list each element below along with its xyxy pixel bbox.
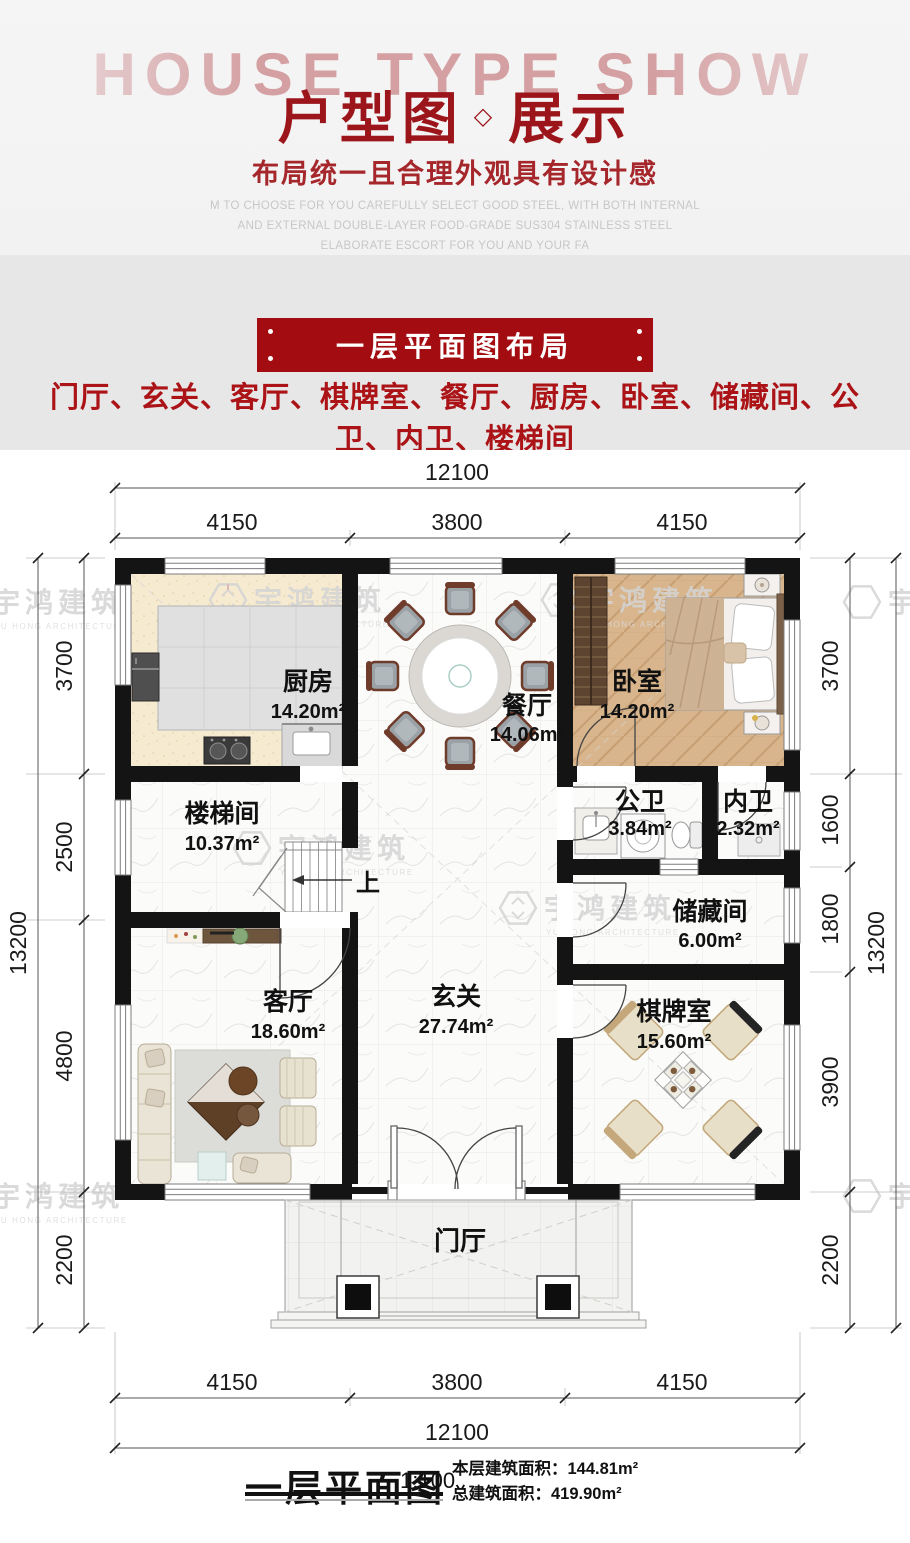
room-area-living: 18.60m² bbox=[251, 1021, 326, 1043]
description-line2: AND EXTERNAL DOUBLE-LAYER FOOD-GRADE SUS… bbox=[0, 216, 910, 236]
window bbox=[784, 1025, 800, 1150]
room-label-storage: 储藏间 bbox=[672, 897, 747, 926]
room-label-living: 客厅 bbox=[263, 987, 313, 1016]
watermark-cn: 宇鸿建筑 bbox=[0, 587, 124, 618]
window bbox=[615, 558, 745, 574]
window bbox=[165, 558, 265, 574]
subtitle: 布局统一且合理外观具有设计感 bbox=[0, 152, 910, 191]
page-title-right: 展示 bbox=[508, 87, 632, 150]
room-area-public-bath: 3.84m² bbox=[608, 818, 672, 840]
dim-left-d: 2200 bbox=[51, 1234, 77, 1285]
watermark-cn: 宇鸿建筑 bbox=[0, 1181, 124, 1212]
dim-left-a: 3700 bbox=[51, 640, 77, 691]
room-area-storage: 6.00m² bbox=[678, 930, 742, 952]
dim-right-c: 1800 bbox=[817, 893, 843, 944]
window bbox=[115, 585, 131, 685]
room-label-mahjong: 棋牌室 bbox=[636, 997, 711, 1026]
dim-bottom-total: 12100 bbox=[425, 1419, 489, 1445]
floor-plan-svg: 宇鸿建筑YU HONG ARCHITECTURE 宇鸿建筑YU HONG ARC… bbox=[0, 450, 910, 1458]
room-area-dining: 14.06m² bbox=[490, 724, 565, 746]
watermark-cn: 宇鸿建筑 bbox=[888, 1181, 910, 1212]
cushion bbox=[145, 1048, 166, 1067]
footer-underline-thin bbox=[245, 1499, 443, 1501]
window bbox=[784, 620, 800, 750]
window bbox=[390, 558, 502, 574]
room-area-kitchen: 14.20m² bbox=[271, 701, 346, 723]
page-title: 户型图◇展示 bbox=[0, 74, 910, 155]
floral-rug bbox=[167, 929, 203, 943]
banner-dot bbox=[268, 329, 273, 334]
window bbox=[165, 1184, 310, 1200]
armchair bbox=[280, 1058, 316, 1098]
total-area-label: 总建筑面积： bbox=[452, 1485, 551, 1503]
porch-step bbox=[271, 1320, 646, 1328]
banner-dot bbox=[268, 356, 273, 361]
total-area-value: 419.90m² bbox=[551, 1485, 622, 1503]
window bbox=[620, 1184, 755, 1200]
footer-area-info: 本层建筑面积：144.81m² 总建筑面积：419.90m² bbox=[452, 1457, 638, 1507]
room-list: 门厅、玄关、客厅、棋牌室、餐厅、厨房、卧室、储藏间、公卫、内卫、楼梯间 bbox=[25, 377, 885, 461]
description-line1: M TO CHOOSE FOR YOU CAREFULLY SELECT GOO… bbox=[0, 196, 910, 216]
footer-underline bbox=[245, 1492, 443, 1496]
section-band: 一层平面图布局 门厅、玄关、客厅、棋牌室、餐厅、厨房、卧室、储藏间、公卫、内卫、… bbox=[0, 255, 910, 453]
dim-right-total: 13200 bbox=[863, 911, 889, 975]
dim-bottom-a: 4150 bbox=[206, 1369, 257, 1395]
room-label-bedroom: 卧室 bbox=[612, 667, 662, 696]
room-area-private-bath: 2.32m² bbox=[716, 818, 780, 840]
banner-title: 一层平面图布局 bbox=[336, 325, 574, 365]
room-label-kitchen: 厨房 bbox=[283, 667, 333, 696]
diamond-icon: ◇ bbox=[474, 103, 498, 130]
dim-bottom-c: 4150 bbox=[656, 1369, 707, 1395]
dim-right-d: 3900 bbox=[817, 1056, 843, 1107]
tray bbox=[229, 1067, 257, 1095]
dim-top-total: 12100 bbox=[425, 459, 489, 485]
watermark-cn: 宇鸿建筑 bbox=[888, 587, 910, 618]
cushion bbox=[145, 1089, 166, 1108]
porch-column bbox=[337, 1276, 379, 1318]
window bbox=[784, 888, 800, 943]
watermark-en: YU HONG ARCHITECTURE bbox=[0, 1216, 128, 1225]
total-area-row: 总建筑面积：419.90m² bbox=[452, 1482, 638, 1507]
watermark-en: YU HONG ARCHITECTURE bbox=[0, 622, 128, 631]
room-label-foyer: 玄关 bbox=[431, 982, 481, 1011]
stairs-up-label: 上 bbox=[356, 870, 380, 897]
dim-left-total: 13200 bbox=[5, 911, 31, 975]
banner-dot bbox=[637, 329, 642, 334]
room-label-stairwell: 楼梯间 bbox=[184, 800, 259, 828]
armchair bbox=[280, 1106, 316, 1146]
description: M TO CHOOSE FOR YOU CAREFULLY SELECT GOO… bbox=[0, 196, 910, 256]
floor-area-value: 144.81m² bbox=[568, 1460, 639, 1478]
description-line3: ELABORATE ESCORT FOR YOU AND YOUR FA bbox=[0, 236, 910, 256]
floor-plan: 宇鸿建筑YU HONG ARCHITECTURE 宇鸿建筑YU HONG ARC… bbox=[0, 450, 910, 1458]
yuhong-logo-icon bbox=[844, 586, 880, 617]
room-label-porch: 门厅 bbox=[434, 1226, 486, 1256]
porch bbox=[271, 1200, 646, 1328]
banner-dot bbox=[637, 356, 642, 361]
thin-wall bbox=[523, 1187, 568, 1194]
yuhong-logo-icon bbox=[844, 1180, 880, 1211]
side-table bbox=[198, 1152, 226, 1180]
footer-scale: 1:100 bbox=[400, 1468, 455, 1494]
room-label-dining: 餐厅 bbox=[502, 692, 552, 720]
dim-right-a: 3700 bbox=[817, 640, 843, 691]
plant bbox=[232, 928, 248, 944]
toilet bbox=[690, 822, 702, 848]
room-label-private-bath: 内卫 bbox=[723, 788, 773, 816]
dim-top-a: 4150 bbox=[206, 509, 257, 535]
thin-wall bbox=[352, 1187, 390, 1194]
page-title-left: 户型图 bbox=[278, 87, 464, 150]
dim-bottom-b: 3800 bbox=[431, 1369, 482, 1395]
room-label-public-bath: 公卫 bbox=[615, 788, 665, 816]
poster-page: HOUSE TYPE SHOW 户型图◇展示 布局统一且合理外观具有设计感 M … bbox=[0, 0, 910, 1543]
room-area-mahjong: 15.60m² bbox=[637, 1031, 712, 1053]
dim-left-c: 4800 bbox=[51, 1030, 77, 1081]
porch-column bbox=[537, 1276, 579, 1318]
window bbox=[115, 1005, 131, 1140]
tray bbox=[237, 1104, 259, 1126]
floor-area-label: 本层建筑面积： bbox=[452, 1460, 568, 1478]
vent-window bbox=[660, 859, 698, 875]
dim-left-b: 2500 bbox=[51, 821, 77, 872]
room-area-stairwell: 10.37m² bbox=[185, 833, 260, 855]
header: HOUSE TYPE SHOW 户型图◇展示 布局统一且合理外观具有设计感 M … bbox=[0, 0, 910, 255]
room-area-foyer: 27.74m² bbox=[419, 1016, 494, 1038]
room-area-bedroom: 14.20m² bbox=[600, 701, 675, 723]
section-banner: 一层平面图布局 bbox=[257, 318, 653, 372]
dim-right-b: 1600 bbox=[817, 794, 843, 845]
floor-area-row: 本层建筑面积：144.81m² bbox=[452, 1457, 638, 1482]
dim-top-c: 4150 bbox=[656, 509, 707, 535]
dim-top-b: 3800 bbox=[431, 509, 482, 535]
dim-right-e: 2200 bbox=[817, 1234, 843, 1285]
window bbox=[115, 800, 131, 875]
window bbox=[784, 792, 800, 850]
